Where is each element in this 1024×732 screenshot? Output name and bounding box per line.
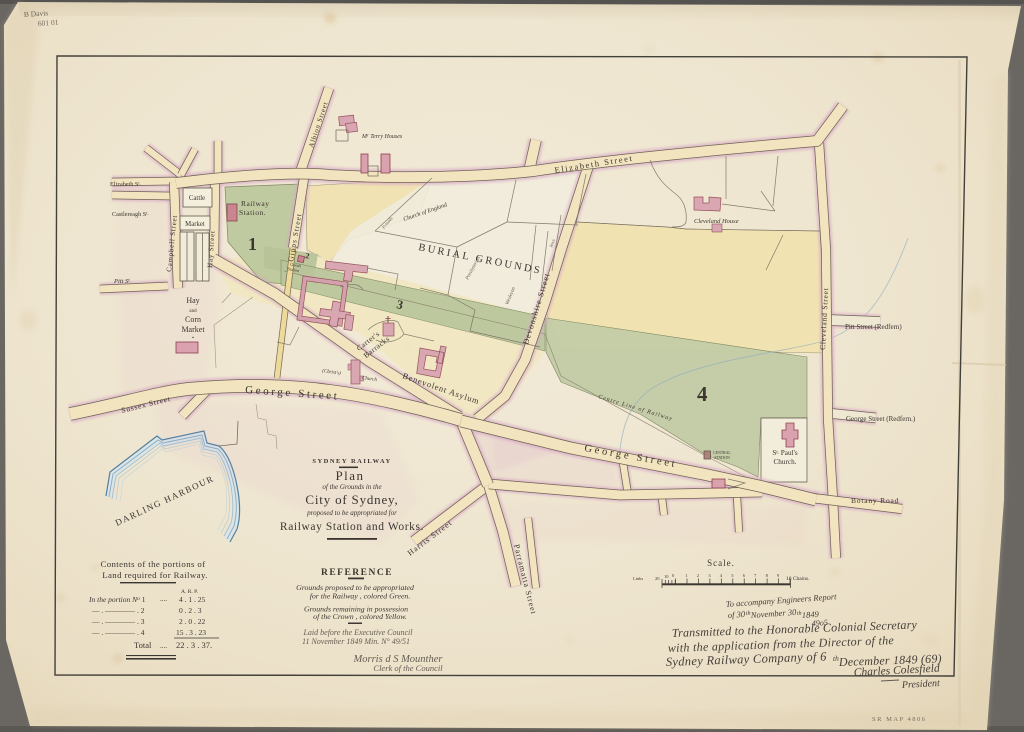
svg-text:Pitt Street (Redfern): Pitt Street (Redfern) <box>845 323 902 331</box>
svg-text:proposed to be appropriated fo: proposed to be appropriated for <box>306 509 397 517</box>
svg-text:of the Grounds in the: of the Grounds in the <box>322 483 381 491</box>
svg-text:Elizabeth St.: Elizabeth St. <box>110 181 141 189</box>
svg-text:City of Sydney,: City of Sydney, <box>305 492 398 507</box>
svg-text:Cattle: Cattle <box>189 195 205 202</box>
svg-text:of 30: of 30 <box>727 609 746 620</box>
svg-text:2 . 0 . 22: 2 . 0 . 22 <box>179 617 206 626</box>
svg-text:15 . 3 . 23: 15 . 3 . 23 <box>176 628 206 637</box>
svg-text:Total: Total <box>134 640 152 650</box>
svg-text:B Davis: B Davis <box>24 8 49 19</box>
svg-text:George Street (Redfern.): George Street (Redfern.) <box>846 415 916 423</box>
svg-text:and: and <box>189 309 197 314</box>
svg-text:Links: Links <box>633 576 643 581</box>
svg-text:― . ―――― . 2: ― . ―――― . 2 <box>91 606 145 615</box>
svg-text:2: 2 <box>697 573 699 578</box>
svg-text:Pitt St.: Pitt St. <box>113 278 131 285</box>
svg-text:CENTRAL: CENTRAL <box>713 451 731 455</box>
svg-text:of the Crown , colored Yello: of the Crown , colored Yellow. <box>313 612 407 621</box>
svg-text:Cleveland House: Cleveland House <box>694 218 739 225</box>
svg-text:Plan: Plan <box>335 468 364 483</box>
svg-text:Land required for Railway.: Land required for Railway. <box>102 570 208 580</box>
svg-text:....: .... <box>160 642 167 650</box>
svg-text:11 November 1849 Min. N° 49/5: 11 November 1849 Min. N° 49/51 <box>302 637 410 646</box>
svg-text:10 Chains.: 10 Chains. <box>786 576 810 582</box>
svg-text:4 . 1 . 25: 4 . 1 . 25 <box>179 595 206 604</box>
svg-text:Corn: Corn <box>185 315 201 324</box>
svg-text:Castlereagh St.: Castlereagh St. <box>112 211 149 219</box>
svg-text:President: President <box>901 678 941 691</box>
svg-text:1: 1 <box>248 234 257 254</box>
svg-text:Market: Market <box>181 325 205 334</box>
svg-text:4: 4 <box>697 382 708 406</box>
svg-text:SR MAP 4806: SR MAP 4806 <box>872 716 927 723</box>
svg-text:Railway Station and Works.: Railway Station and Works. <box>280 521 424 533</box>
svg-text:601 01: 601 01 <box>38 18 59 28</box>
svg-text:Market: Market <box>185 221 205 228</box>
svg-text:0 . 2 . 3: 0 . 2 . 3 <box>179 606 202 615</box>
svg-text:― . ―――― . 4: ― . ―――― . 4 <box>91 628 145 637</box>
svg-text:▪: ▪ <box>192 336 194 341</box>
svg-text:STATION: STATION <box>714 456 730 460</box>
svg-text:REFERENCE: REFERENCE <box>321 568 393 578</box>
svg-text:1: 1 <box>686 573 688 578</box>
svg-text:Botany Road: Botany Road <box>851 496 899 505</box>
svg-text:20: 20 <box>655 576 660 581</box>
svg-text:Scale.: Scale. <box>707 558 735 568</box>
svg-text:Laid before the Executive Coun: Laid before the Executive Council <box>302 628 413 637</box>
svg-text:― . ―――― . 3: ― . ―――― . 3 <box>91 617 145 626</box>
svg-text:St. Paul's: St. Paul's <box>772 449 798 457</box>
svg-text:Station.: Station. <box>239 208 266 217</box>
svg-text:In the portion No 1: In the portion No 1 <box>88 595 146 604</box>
svg-text:10: 10 <box>664 574 669 579</box>
svg-text:22 . 3 . 37.: 22 . 3 . 37. <box>176 640 212 650</box>
svg-text:Church.: Church. <box>774 458 797 466</box>
svg-text:....: .... <box>160 595 167 603</box>
svg-text:SYDNEY RAILWAY: SYDNEY RAILWAY <box>312 458 391 465</box>
svg-text:Railway: Railway <box>241 199 270 208</box>
svg-text:Contents of the portions of: Contents of the portions of <box>100 559 205 569</box>
svg-text:Hay: Hay <box>186 296 199 305</box>
svg-text:Clerk of the Council: Clerk of the Council <box>373 663 443 673</box>
svg-text:for the Railway , colored Gr: for the Railway , colored Green. <box>310 592 411 601</box>
